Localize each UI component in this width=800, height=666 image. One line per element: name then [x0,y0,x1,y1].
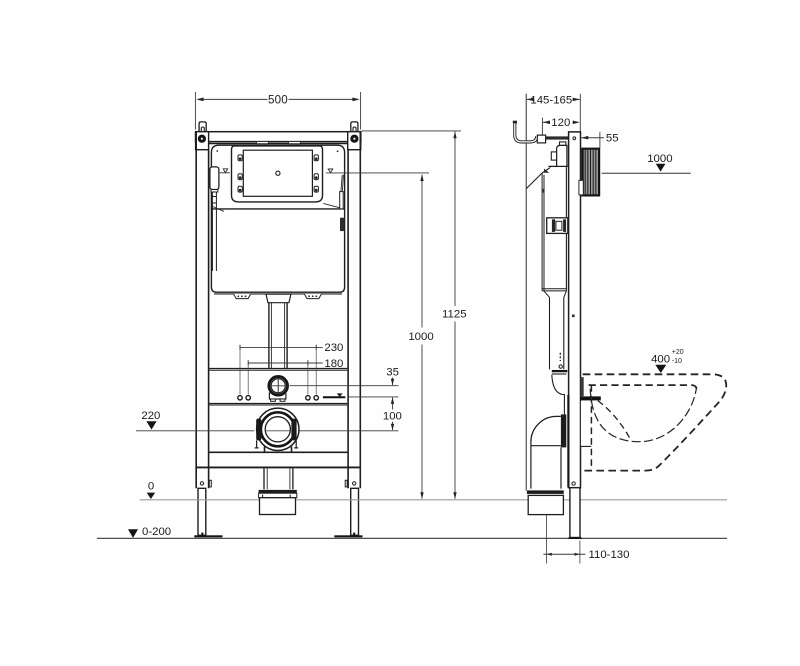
svg-text:1000: 1000 [647,153,672,165]
svg-text:1000: 1000 [408,331,433,343]
svg-text:1125: 1125 [442,309,467,321]
svg-text:230: 230 [324,342,343,354]
svg-text:35: 35 [386,366,399,378]
svg-text:180: 180 [324,358,343,370]
svg-text:0: 0 [148,480,154,492]
svg-text:145-165: 145-165 [530,95,572,107]
svg-text:110-130: 110-130 [589,549,630,561]
svg-text:100: 100 [383,411,402,423]
svg-text:55: 55 [606,132,619,144]
svg-text:120: 120 [551,117,570,129]
svg-text:400: 400 [651,354,670,366]
svg-text:500: 500 [268,93,288,106]
svg-text:-10: -10 [672,358,682,365]
svg-text:0-200: 0-200 [142,526,171,538]
svg-text:+20: +20 [672,349,684,356]
svg-text:220: 220 [141,410,160,422]
